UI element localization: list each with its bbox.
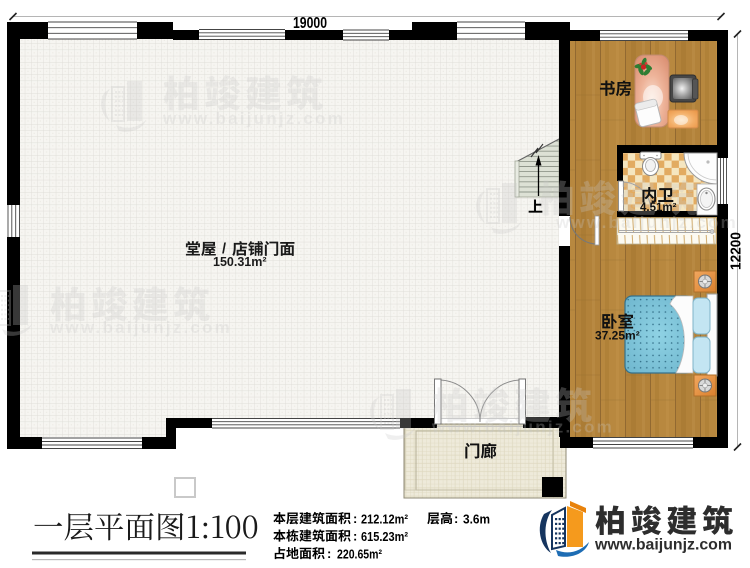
svg-text:www.baijunjz.com: www.baijunjz.com bbox=[555, 213, 738, 232]
svg-text:220.65m²: 220.65m² bbox=[337, 547, 383, 562]
svg-text:37.25m²: 37.25m² bbox=[595, 329, 640, 343]
svg-text::: : bbox=[454, 511, 458, 526]
svg-text:19000: 19000 bbox=[293, 15, 327, 32]
svg-text::: : bbox=[327, 546, 331, 561]
svg-text::: : bbox=[353, 511, 357, 526]
svg-text:www.baijunjz.com: www.baijunjz.com bbox=[594, 537, 732, 554]
svg-text::: : bbox=[353, 529, 357, 544]
svg-text:3.6m: 3.6m bbox=[463, 512, 490, 527]
svg-text:www.baijunjz.com: www.baijunjz.com bbox=[162, 109, 345, 128]
svg-text:www.baijunjz.com: www.baijunjz.com bbox=[431, 418, 614, 437]
svg-text:150.31m²: 150.31m² bbox=[213, 255, 267, 269]
svg-text:615.23m²: 615.23m² bbox=[361, 529, 409, 544]
svg-text:www.baijunjz.com: www.baijunjz.com bbox=[49, 318, 232, 337]
svg-text:212.12m²: 212.12m² bbox=[361, 512, 409, 527]
svg-text:4.51m²: 4.51m² bbox=[640, 202, 677, 214]
svg-text:12200: 12200 bbox=[728, 232, 745, 270]
